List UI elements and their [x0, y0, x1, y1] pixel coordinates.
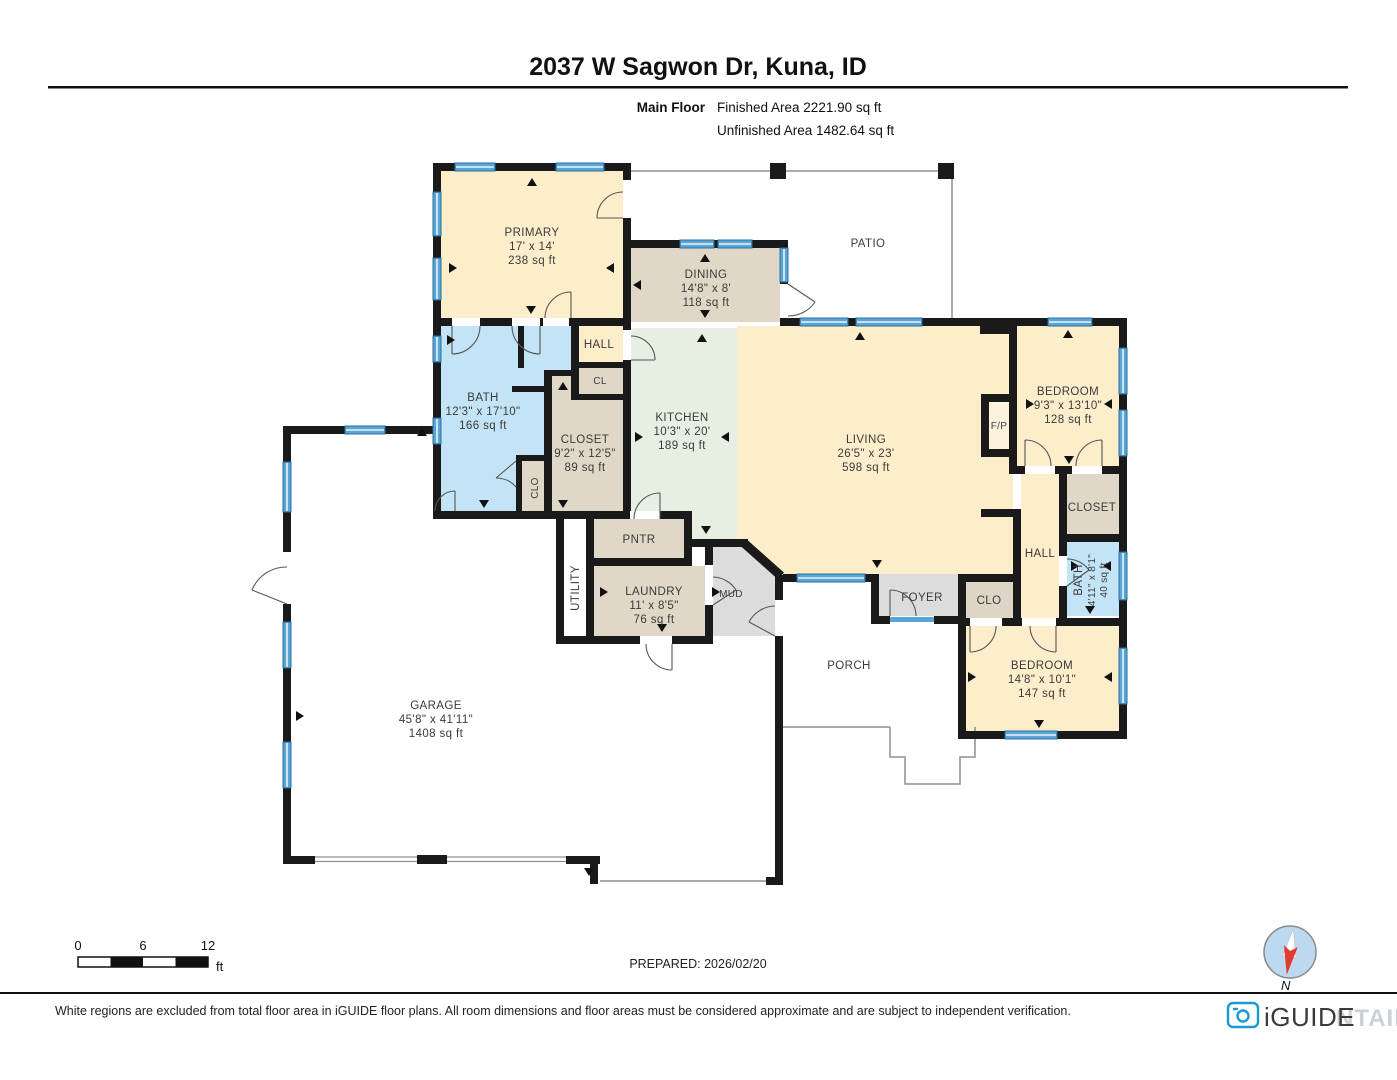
clo-small-name: CLO: [530, 477, 541, 498]
bedroom-se-name: BEDROOM: [1011, 660, 1073, 672]
front-door-sill: [890, 617, 934, 622]
scale-bar: 0 6 12 ft: [74, 938, 223, 974]
porch-name: PORCH: [827, 660, 871, 672]
floor-plan-canvas: 2037 W Sagwon Dr, Kuna, ID Main Floor Fi…: [0, 0, 1397, 1080]
brand-name: iGUIDE: [1264, 1002, 1355, 1032]
closet-primary-area: 89 sq ft: [565, 462, 606, 474]
kitchen-dims: 10'3" x 20': [654, 426, 711, 438]
bedroom-ne-name: BEDROOM: [1037, 386, 1099, 398]
scale-unit: ft: [216, 959, 224, 974]
cl-name: CL: [593, 376, 607, 387]
porch-steps-outline: [783, 727, 975, 784]
kitchen-area: 189 sq ft: [658, 440, 706, 452]
room-hall-right: [1021, 474, 1059, 618]
closet-primary-name: CLOSET: [561, 434, 609, 446]
bath-primary-name: BATH: [467, 392, 498, 404]
primary-dims: 17' x 14': [509, 241, 555, 253]
patio-name: PATIO: [851, 238, 886, 250]
scale-bar-seg2: [176, 957, 209, 967]
dining-dims: 14'8" x 8': [681, 283, 731, 295]
closet-ne-name: CLOSET: [1068, 502, 1116, 514]
compass-icon: N: [1264, 926, 1316, 993]
fireplace-name: F/P: [991, 421, 1007, 432]
bedroom-ne-area: 128 sq ft: [1044, 414, 1092, 426]
laundry-area: 76 sq ft: [634, 614, 675, 626]
disclaimer-text: White regions are excluded from total fl…: [55, 1004, 1071, 1018]
prepared-date: PREPARED: 2026/02/20: [629, 957, 766, 971]
laundry-dims: 11' x 8'5": [629, 600, 678, 612]
hall-right-name: HALL: [1025, 548, 1056, 560]
footer-divider: [0, 992, 1397, 994]
bath-primary-area: 166 sq ft: [459, 420, 507, 432]
floor-plan-page: 2037 W Sagwon Dr, Kuna, ID Main Floor Fi…: [0, 0, 1397, 1080]
hall-upper-name: HALL: [584, 339, 615, 351]
floor-label: Main Floor: [637, 100, 706, 115]
clo-right-name: CLO: [977, 595, 1002, 607]
pantry-name: PNTR: [623, 534, 656, 546]
mud-name: MUD: [719, 589, 743, 600]
bedroom-se-dims: 14'8" x 10'1": [1008, 674, 1076, 686]
finished-area: Finished Area 2221.90 sq ft: [717, 100, 882, 115]
page-title: 2037 W Sagwon Dr, Kuna, ID: [529, 53, 867, 81]
unfinished-area: Unfinished Area 1482.64 sq ft: [717, 123, 894, 138]
scale-bar-seg1: [111, 957, 144, 967]
bath-right-name: BATH: [1073, 564, 1085, 595]
iguide-logo: iGUIDE: [1228, 1002, 1355, 1032]
utility-name: UTILITY: [570, 565, 582, 611]
foyer-name: FOYER: [901, 592, 943, 604]
scale-tick-0: 0: [74, 938, 81, 953]
iguide-camera-icon: [1228, 1003, 1258, 1027]
bath-right-area: 40 sq ft: [1099, 562, 1110, 597]
bath-primary-dims: 12'3" x 17'10": [445, 406, 520, 418]
living-dims: 26'5" x 23': [838, 448, 895, 460]
primary-area: 238 sq ft: [508, 255, 556, 267]
bedroom-se-area: 147 sq ft: [1018, 688, 1066, 700]
scale-tick-12: 12: [201, 938, 215, 953]
garage-name: GARAGE: [410, 700, 462, 712]
dining-name: DINING: [685, 269, 728, 281]
closet-primary-dims: 9'2" x 12'5": [554, 448, 615, 460]
laundry-name: LAUNDRY: [625, 586, 683, 598]
garage-area: 1408 sq ft: [409, 728, 464, 740]
primary-name: PRIMARY: [505, 227, 560, 239]
living-area: 598 sq ft: [842, 462, 890, 474]
garage-dims: 45'8" x 41'11": [399, 714, 473, 726]
bath-right-dims: 4'11" x 8'1": [1087, 554, 1098, 606]
compass-north-label: N: [1281, 978, 1291, 993]
scale-tick-6: 6: [139, 938, 146, 953]
bedroom-ne-dims: 9'3" x 13'10": [1034, 400, 1102, 412]
kitchen-name: KITCHEN: [655, 412, 708, 424]
living-name: LIVING: [846, 434, 886, 446]
header-divider: [48, 86, 1348, 89]
dining-area: 118 sq ft: [683, 297, 730, 309]
